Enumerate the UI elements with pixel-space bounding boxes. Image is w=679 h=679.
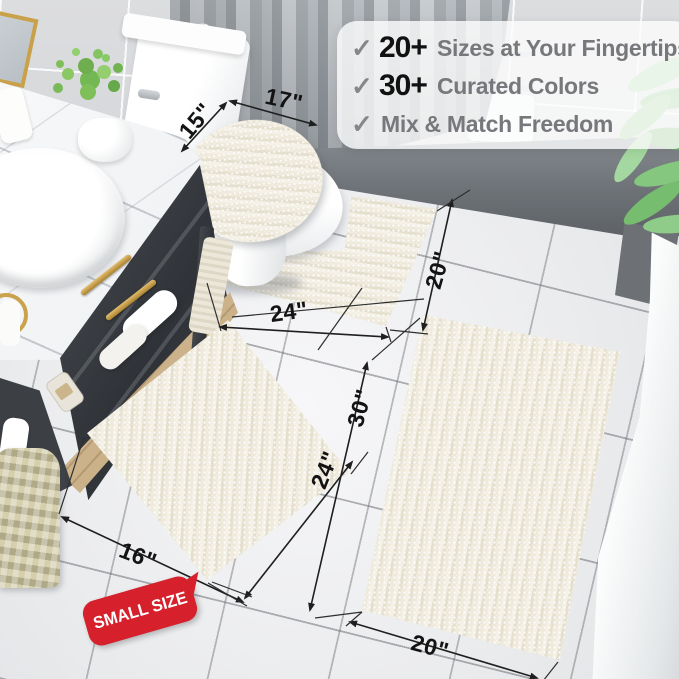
- callout-count: 30+: [379, 69, 435, 103]
- plant-pot: [78, 118, 132, 162]
- feature-callout: ✓ 20+ Sizes at Your Fingertips ✓ 30+ Cur…: [337, 21, 679, 149]
- product-scene: 17" 15" 24" 20" 16" 24" 30" 20" ✓ 20+ Si…: [0, 0, 679, 679]
- jar-label: [54, 382, 73, 400]
- callout-row: ✓ Mix & Match Freedom: [351, 105, 679, 143]
- callout-row: ✓ 30+ Curated Colors: [351, 67, 679, 105]
- dimension-label-contour-width: 24": [268, 296, 309, 328]
- callout-row: ✓ 20+ Sizes at Your Fingertips: [351, 29, 679, 67]
- storage-basket: [0, 448, 60, 588]
- checkmark-icon: ✓: [351, 71, 379, 102]
- counter-plant: [80, 84, 96, 100]
- callout-label: Mix & Match Freedom: [381, 111, 613, 138]
- ring-towel: [0, 300, 20, 346]
- callout-label: Curated Colors: [437, 73, 599, 100]
- checkmark-icon: ✓: [351, 109, 379, 140]
- callout-label: Sizes at Your Fingertips: [437, 35, 679, 62]
- checkmark-icon: ✓: [351, 33, 379, 64]
- callout-count: 20+: [379, 31, 435, 65]
